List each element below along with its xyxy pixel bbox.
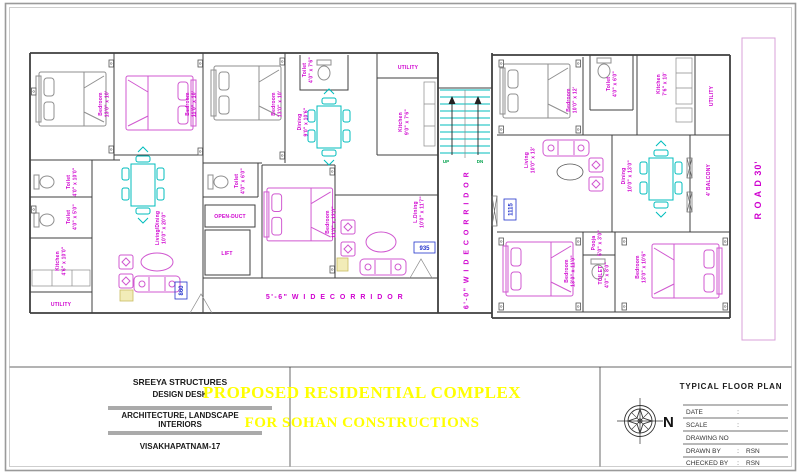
floor-plan: UP DN R O A D 30': [30, 38, 775, 340]
stair-dn-label: DN: [477, 159, 484, 164]
table-row-drawing-no: DRAWING NO: [686, 435, 729, 442]
svg-text:Bedroom: Bedroom: [271, 92, 277, 116]
svg-text:9'0" x 10'6": 9'0" x 10'6": [304, 107, 310, 136]
svg-text:TOILET: TOILET: [598, 266, 604, 285]
room-label-toilet-mid1: Toilet 4'0" x 10'0": [66, 167, 79, 196]
area-tag-935: 935: [414, 242, 435, 253]
stair-up-label: UP: [443, 159, 449, 164]
svg-text:Bedroom: Bedroom: [566, 88, 572, 112]
road-label: R O A D 30': [753, 161, 763, 220]
dining-table: [640, 141, 682, 217]
room-label-utility-r: UTILITY: [709, 85, 715, 106]
room-label-bed1: Bedroom 13'0" x 10': [98, 91, 111, 117]
svg-text:9'0" x 7'6": 9'0" x 7'6": [405, 109, 411, 135]
svg-text:13'0" x 10'6": 13'0" x 10'6": [642, 251, 648, 283]
company-dept: DESIGN DESK: [152, 390, 207, 399]
project-title-line2: FOR SOHAN CONSTRUCTIONS: [245, 415, 480, 431]
svg-text:DATE: DATE: [686, 409, 704, 416]
room-label-toilet-mid2: Toilet 4'0" x 5'0": [66, 204, 79, 230]
svg-text:DRAWING NO: DRAWING NO: [686, 435, 729, 442]
sink: [119, 274, 133, 288]
room-label-bed-r1: Bedroom 10'0" x 12': [566, 87, 579, 113]
svg-text::: :: [737, 409, 739, 416]
shower-tray: [337, 258, 348, 271]
room-label-toilet-r1: Toilet 4'0" x 6'0": [606, 71, 619, 97]
door-swing: [190, 259, 432, 313]
svg-text:SCALE: SCALE: [686, 422, 708, 429]
drawing-title: TYPICAL FLOOR PLAN: [680, 382, 783, 391]
left-block-walls: [30, 53, 492, 313]
svg-text:Kitchen: Kitchen: [398, 112, 404, 132]
svg-text:Toilet: Toilet: [66, 210, 72, 224]
svg-text:RSN: RSN: [746, 460, 760, 467]
staircase: UP DN: [440, 90, 490, 164]
room-label-dining-left: Dining 9'0" x 10'6": [297, 107, 310, 136]
room-label-bed2: Bedroom 11'0" x 10': [185, 91, 198, 117]
room-label-l-dining: L.Dining 10'0" x 11'7": [413, 196, 426, 228]
svg-text:4'0" x 7'6": 4'0" x 7'6": [309, 57, 315, 83]
svg-text:11'0" x 10': 11'0" x 10': [192, 91, 198, 117]
svg-text:4'0" x 5'0": 4'0" x 5'0": [73, 204, 79, 230]
svg-text:11'0" x 12'0": 11'0" x 12'0": [332, 206, 338, 238]
svg-text:6'-0" W I D E C O R R I D O R: 6'-0" W I D E C O R R I D O R: [464, 171, 471, 309]
dining-table: [308, 89, 350, 165]
svg-text:Living/Dining: Living/Dining: [155, 211, 161, 245]
title-block: SREEYA STRUCTURES DESIGN DESK ARCHITECTU…: [10, 367, 792, 467]
room-label-utility-top: UTILITY: [398, 65, 419, 71]
room-label-lift: LIFT: [221, 251, 232, 257]
svg-text:5'0" x 3'0": 5'0" x 3'0": [598, 230, 604, 256]
svg-text:4'6" x 10'0": 4'6" x 10'0": [62, 246, 68, 275]
room-label-pooja: Pooja 5'0" x 3'0": [591, 230, 604, 256]
drawing-info-table: DATE : SCALE : DRAWING NO DRAWN BY :: [683, 405, 788, 467]
svg-text:DRAWN BY: DRAWN BY: [686, 448, 721, 455]
svg-text:Toilet: Toilet: [606, 77, 612, 91]
svg-text:Bedroom: Bedroom: [325, 210, 331, 234]
bed-furniture: [36, 72, 106, 126]
svg-text:Dining: Dining: [297, 114, 303, 131]
svg-text:7'6" x 10': 7'6" x 10': [663, 72, 669, 95]
north-label: N: [663, 414, 674, 431]
svg-text:Kitchen: Kitchen: [55, 251, 61, 271]
room-label-kitchen-top: Kitchen 9'0" x 7'6": [398, 109, 411, 135]
sink: [341, 220, 355, 234]
toilet-fixture: [597, 58, 611, 78]
armchair: [589, 177, 603, 191]
room-label-utility-left: UTILITY: [51, 302, 72, 308]
svg-text:4'0" x 10'0": 4'0" x 10'0": [73, 167, 79, 196]
svg-text::: :: [737, 448, 739, 455]
svg-text:1115: 1115: [509, 202, 515, 215]
svg-text:Bedroom: Bedroom: [98, 92, 104, 116]
svg-text:10'0" x 13': 10'0" x 13': [531, 147, 537, 173]
svg-text:10'0" x 13'0": 10'0" x 13'0": [628, 160, 634, 192]
company-field1: ARCHITECTURE, LANDSCAPE: [121, 411, 239, 420]
sink: [119, 255, 133, 269]
road: R O A D 30': [742, 38, 775, 340]
svg-text:L.Dining: L.Dining: [413, 201, 419, 223]
central-corridor-label: 6'-0" W I D E C O R R I D O R: [464, 171, 471, 309]
room-label-living-r: Living 10'0" x 13': [524, 147, 537, 173]
svg-text:Living: Living: [524, 152, 530, 168]
company-field2: INTERIORS: [158, 420, 202, 429]
svg-text:Toilet: Toilet: [66, 175, 72, 189]
table-row-checked-by: CHECKED BY : RSN: [686, 460, 760, 467]
svg-text:RSN: RSN: [746, 448, 760, 455]
toilet-fixture: [208, 175, 228, 189]
sofa: [543, 140, 589, 156]
svg-text:10'0" x 11'7": 10'0" x 11'7": [420, 196, 426, 228]
svg-text:Toilet: Toilet: [302, 63, 308, 77]
svg-text:13'0" x 10': 13'0" x 10': [105, 91, 111, 117]
floor-plan-sheet: UP DN R O A D 30': [0, 0, 800, 475]
room-label-toilet-top: Toilet 4'0" x 7'6": [302, 57, 315, 83]
room-label-balcony: 4' BALCONY: [706, 164, 712, 197]
svg-text:935: 935: [419, 246, 430, 252]
room-label-toilet-center: Toilet 4'0" x 6'0": [234, 168, 247, 194]
toilet-fixture: [34, 213, 54, 227]
toilet-fixture: [317, 60, 331, 80]
svg-text:860: 860: [179, 285, 185, 296]
company-city: VISAKHAPATNAM-17: [140, 442, 221, 451]
svg-text:Bedroom: Bedroom: [635, 255, 641, 279]
svg-text:4'0" x 8'0": 4'0" x 8'0": [605, 262, 611, 288]
bed-furniture: [500, 64, 570, 118]
room-label-bed-rb1: Bedroom 13'0" x 11'0": [564, 255, 577, 287]
svg-text:Toilet: Toilet: [234, 174, 240, 188]
room-label-kitchen-r: Kitchen 7'6" x 10': [656, 72, 669, 95]
sofa: [134, 276, 180, 292]
area-tag-860: 860: [175, 282, 187, 299]
sink: [341, 242, 355, 256]
bed-furniture: [652, 244, 722, 298]
compass-rose-icon: [617, 398, 663, 444]
svg-text:Bedroom: Bedroom: [185, 92, 191, 116]
svg-text:13'0" x 11'0": 13'0" x 11'0": [571, 255, 577, 287]
svg-text:Pooja: Pooja: [591, 236, 597, 251]
shower-tray: [120, 290, 133, 301]
bottom-corridor-label: 5'-6" W I D E C O R R I D O R: [266, 294, 404, 301]
svg-text:10'0" x 12': 10'0" x 12': [573, 87, 579, 113]
table-row-date: DATE :: [686, 409, 739, 416]
room-label-bed-rb2: Bedroom 13'0" x 10'6": [635, 251, 648, 283]
room-label-kitchen-left: Kitchen 4'6" x 10'0": [55, 246, 68, 275]
svg-text:UTILITY: UTILITY: [709, 85, 715, 106]
bathtub: [141, 253, 173, 271]
armchair: [589, 158, 603, 172]
bathtub: [366, 232, 396, 252]
room-label-bed-center: Bedroom 11'0" x 12'0": [325, 206, 338, 238]
toilet-fixture: [34, 175, 54, 189]
area-tag-1115: 1115: [504, 199, 516, 220]
drawing-info-panel: TYPICAL FLOOR PLAN N DATE :: [617, 382, 788, 467]
room-label-dining-r: Dining 10'0" x 13'0": [621, 160, 634, 192]
svg-text::: :: [737, 460, 739, 467]
svg-text:Kitchen: Kitchen: [656, 74, 662, 94]
sofa: [360, 259, 406, 275]
svg-text:Bedroom: Bedroom: [564, 259, 570, 283]
coffee-table: [557, 164, 583, 180]
room-label-bed3: Bedroom 13'0" x 10': [271, 91, 284, 117]
svg-text::: :: [737, 422, 739, 429]
svg-text:10'0" x 20'0": 10'0" x 20'0": [162, 212, 168, 244]
room-label-open-duct: OPEN-DUCT: [214, 214, 246, 220]
svg-text:13'0" x 10': 13'0" x 10': [278, 91, 284, 117]
room-label-living-dining: Living/Dining 10'0" x 20'0": [155, 211, 168, 245]
table-row-scale: SCALE :: [686, 422, 739, 429]
table-row-drawn-by: DRAWN BY : RSN: [686, 448, 760, 455]
bed-furniture: [503, 242, 573, 296]
svg-text:4'0" x 6'0": 4'0" x 6'0": [241, 168, 247, 194]
svg-text:CHECKED BY: CHECKED BY: [686, 460, 729, 467]
svg-text:4'0" x 6'0": 4'0" x 6'0": [613, 71, 619, 97]
svg-text:Dining: Dining: [621, 168, 627, 185]
svg-text:4' BALCONY: 4' BALCONY: [706, 164, 712, 197]
bed-furniture: [264, 188, 333, 241]
project-title-line1: PROPOSED RESIDENTIAL COMPLEX: [203, 383, 521, 402]
